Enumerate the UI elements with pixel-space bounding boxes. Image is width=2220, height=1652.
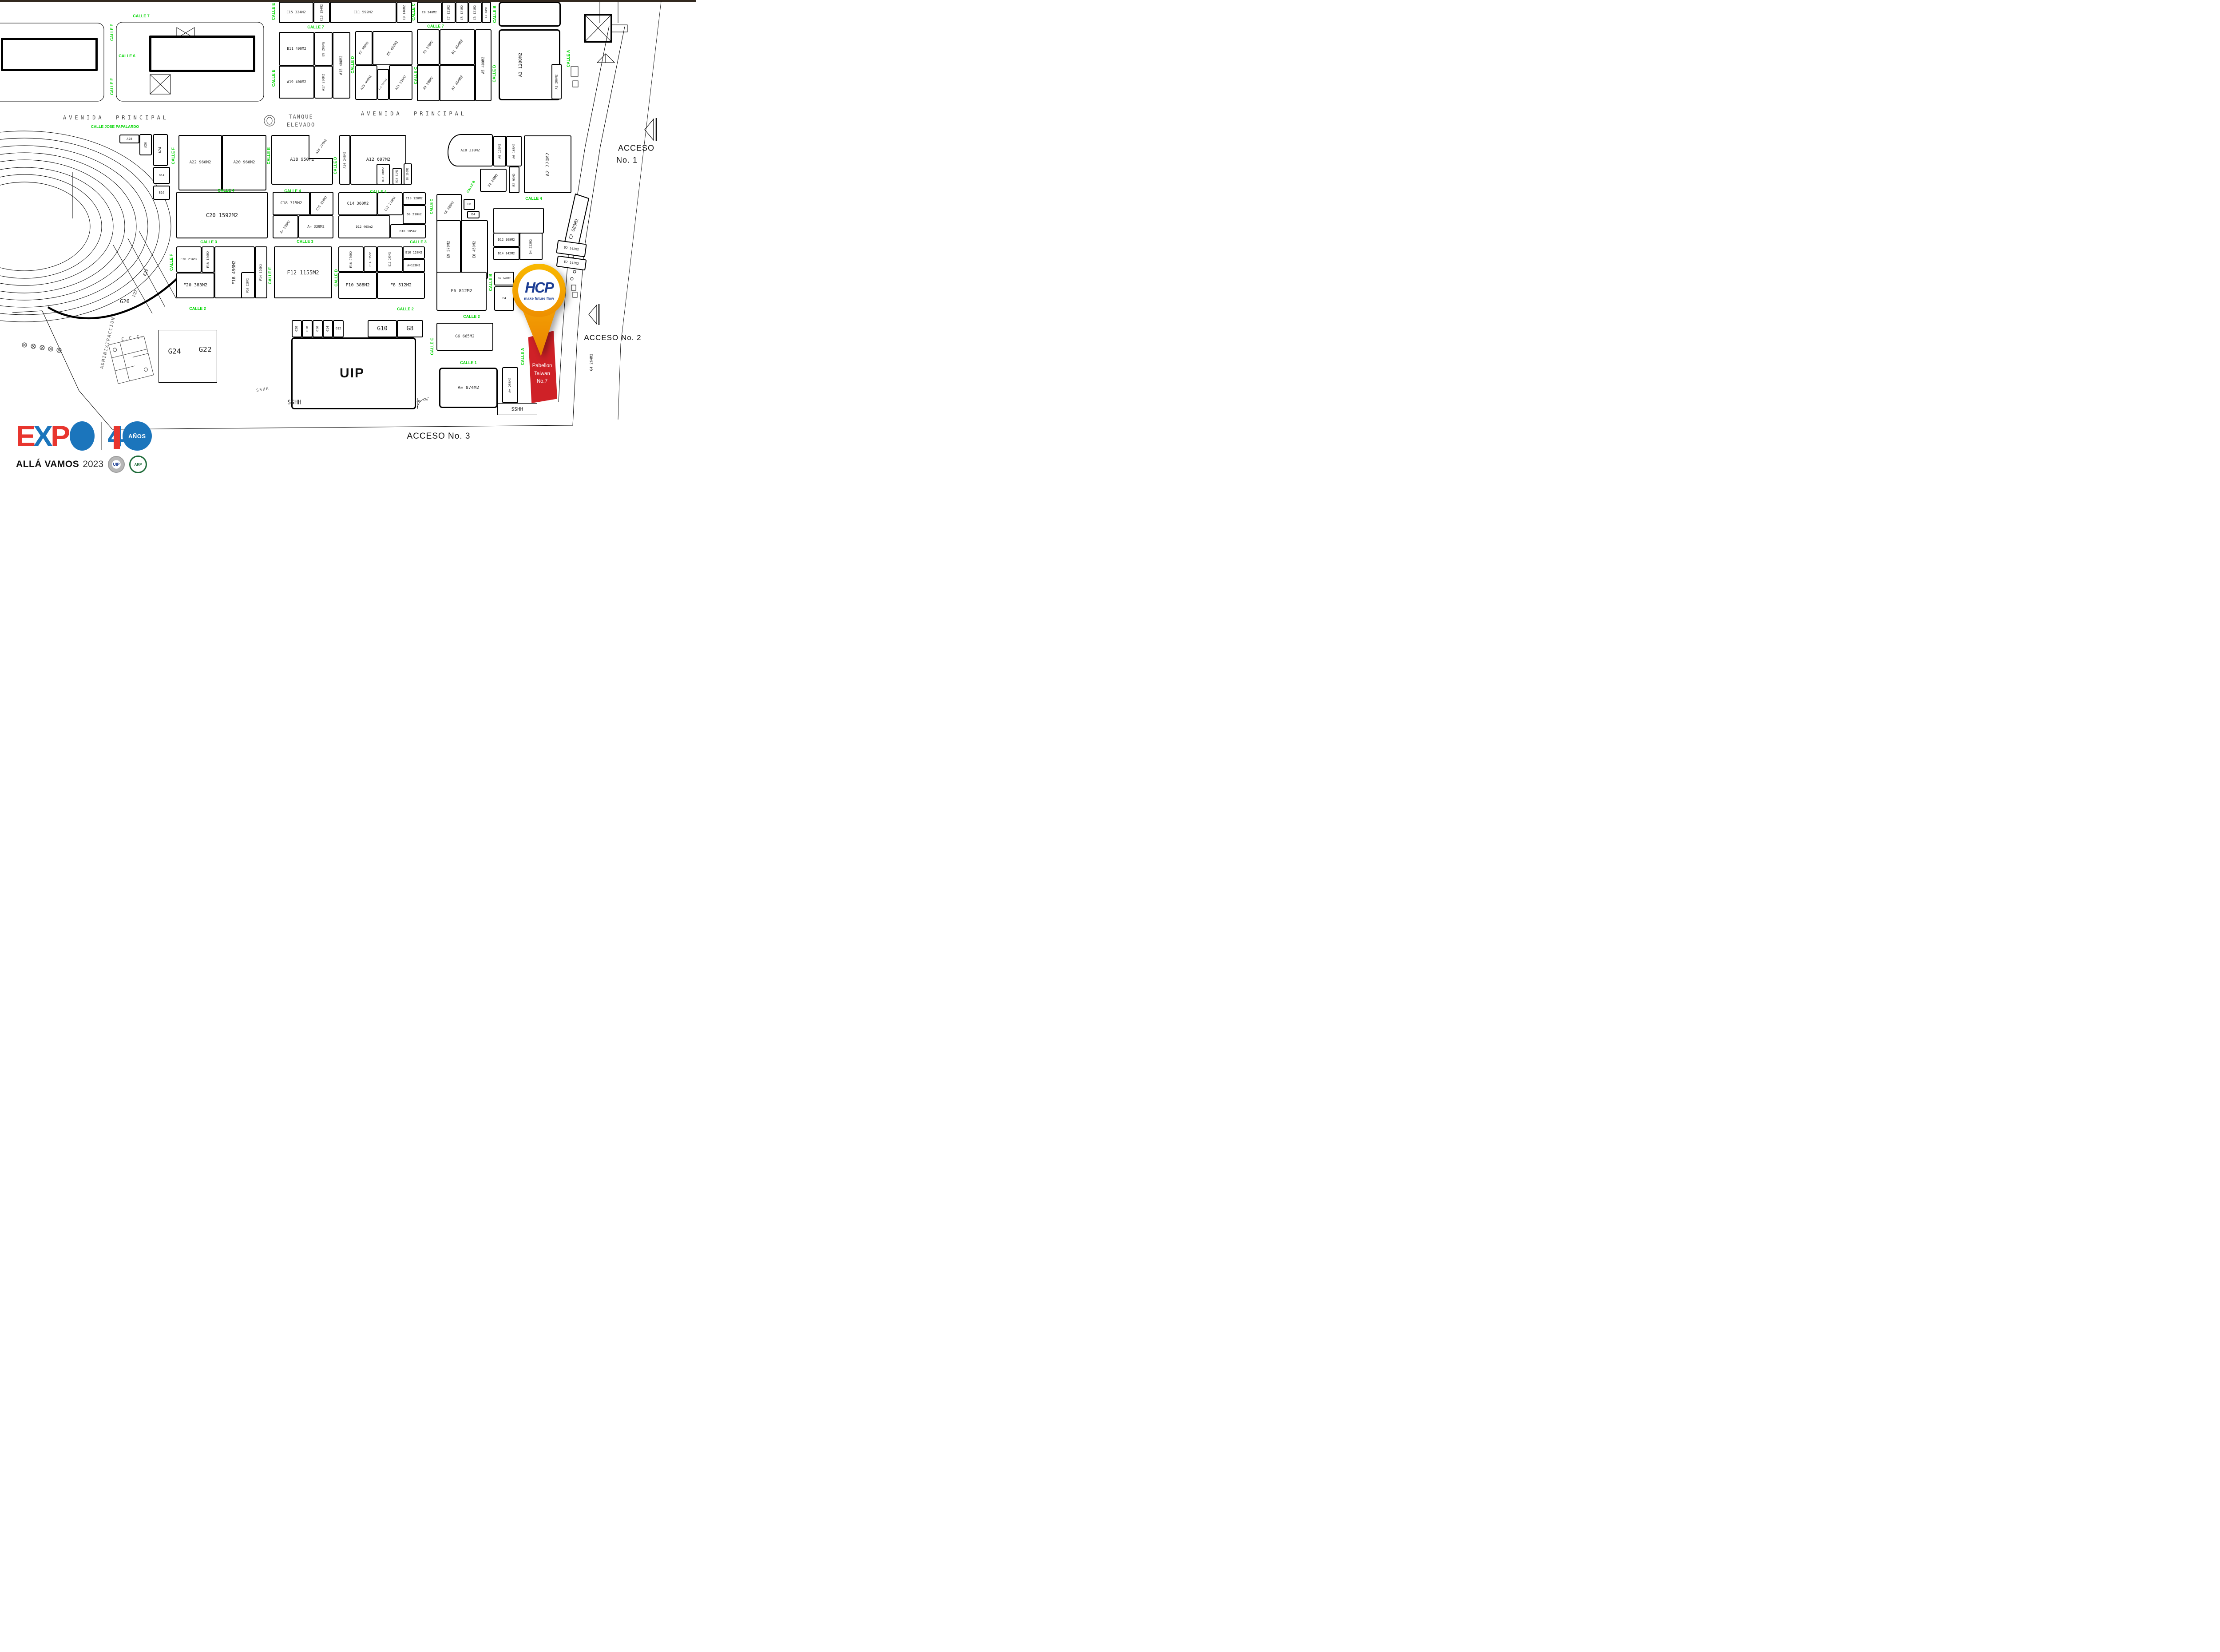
expo-logo-word: E X P O 4 AÑOS	[16, 420, 220, 452]
pin-inner-disc: HCP make future flow	[518, 269, 560, 311]
text-sshh: SSHH	[256, 386, 270, 393]
text-acceso: ACCESO	[618, 144, 654, 153]
text-acceso-no-3: ACCESO No. 3	[407, 432, 471, 441]
taiwan-line1: Pabellon	[532, 362, 552, 370]
logo-year: 2023	[83, 459, 103, 470]
hcp-tagline: make future flow	[524, 296, 554, 301]
text-uip: UIP	[340, 366, 365, 381]
taiwan-line3: No.7	[537, 378, 547, 385]
logo-letter-p: P	[51, 421, 68, 451]
text-acceso-no-2: ACCESO No. 2	[584, 333, 641, 342]
logo-letter-e: E	[16, 421, 33, 451]
text-6-00: 6,00	[423, 399, 428, 401]
text-elevado: ELEVADO	[287, 122, 316, 128]
logo-letter-x: X	[33, 421, 51, 451]
text-g22: G22	[199, 345, 212, 354]
taiwan-line2: Taiwan	[534, 370, 550, 378]
text-administraccion: ADMINISTRACCION	[99, 316, 116, 369]
logo-anios-circle: AÑOS	[123, 421, 152, 451]
text-g26: G26	[120, 298, 130, 305]
text-tanque: TANQUE	[289, 114, 313, 120]
uip-badge-icon: UIP	[108, 456, 125, 473]
hcp-location-pin[interactable]: HCP make future flow	[512, 264, 566, 359]
text-e22: E22	[143, 269, 150, 277]
arp-badge-icon: ARP	[129, 456, 147, 473]
logo-letter-o: O	[70, 421, 95, 451]
logo-divider	[101, 422, 102, 450]
text-c2-683m2: C2 683M2	[568, 218, 579, 240]
logo-tagline: ALLÁ VAMOS	[16, 459, 79, 470]
text-g4-264m2: G4 264M2	[590, 354, 594, 371]
expo-ground-map: C15 324M2C13 154M2C11 592M2C9 146M2C8 24…	[0, 0, 696, 492]
text-no-1: No. 1	[616, 156, 638, 165]
expo-logo-tagline: ALLÁ VAMOS 2023 UIP ARP	[16, 456, 220, 473]
text-avenida-principal: AVENIDA PRINCIPAL	[361, 111, 467, 117]
text-sshh: SSHH	[287, 400, 301, 406]
text-avenida-principal: AVENIDA PRINCIPAL	[63, 115, 169, 121]
annotation-layer: AVENIDA PRINCIPALAVENIDA PRINCIPALTANQUE…	[0, 0, 696, 492]
text-1-10: 1,10	[415, 400, 420, 403]
text-c-c-c: C.C.C.	[121, 333, 144, 342]
text-f22: F22	[132, 289, 139, 298]
logo-digit-4: 4	[107, 421, 122, 451]
text-g24: G24	[168, 347, 181, 356]
expo-logo: E X P O 4 AÑOS ALLÁ VAMOS 2023 UIP ARP	[16, 420, 220, 473]
hcp-logo: HCP	[525, 280, 553, 295]
